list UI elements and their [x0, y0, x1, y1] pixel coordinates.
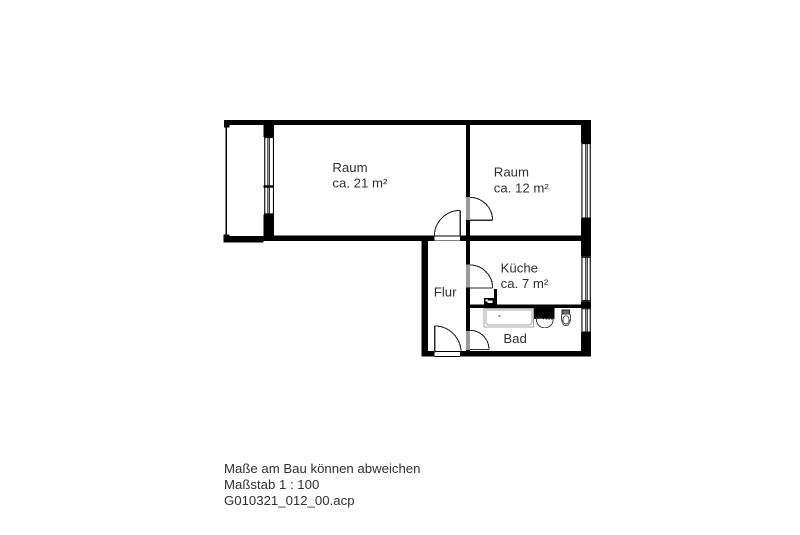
svg-text:G010321_012_00.acp: G010321_012_00.acp [224, 493, 355, 508]
svg-text:Maßstab 1 : 100: Maßstab 1 : 100 [224, 477, 319, 492]
svg-text:Raum: Raum [332, 160, 367, 175]
svg-text:ca. 12 m²: ca. 12 m² [494, 181, 550, 196]
svg-text:Flur: Flur [434, 284, 457, 299]
svg-text:Raum: Raum [494, 164, 529, 179]
svg-text:Maße am Bau können abweichen: Maße am Bau können abweichen [224, 461, 420, 476]
svg-text:ca. 21 m²: ca. 21 m² [332, 176, 388, 191]
svg-text:ca. 7 m²: ca. 7 m² [501, 276, 549, 291]
svg-text:Küche: Küche [501, 261, 538, 276]
svg-text:Bad: Bad [503, 331, 526, 346]
